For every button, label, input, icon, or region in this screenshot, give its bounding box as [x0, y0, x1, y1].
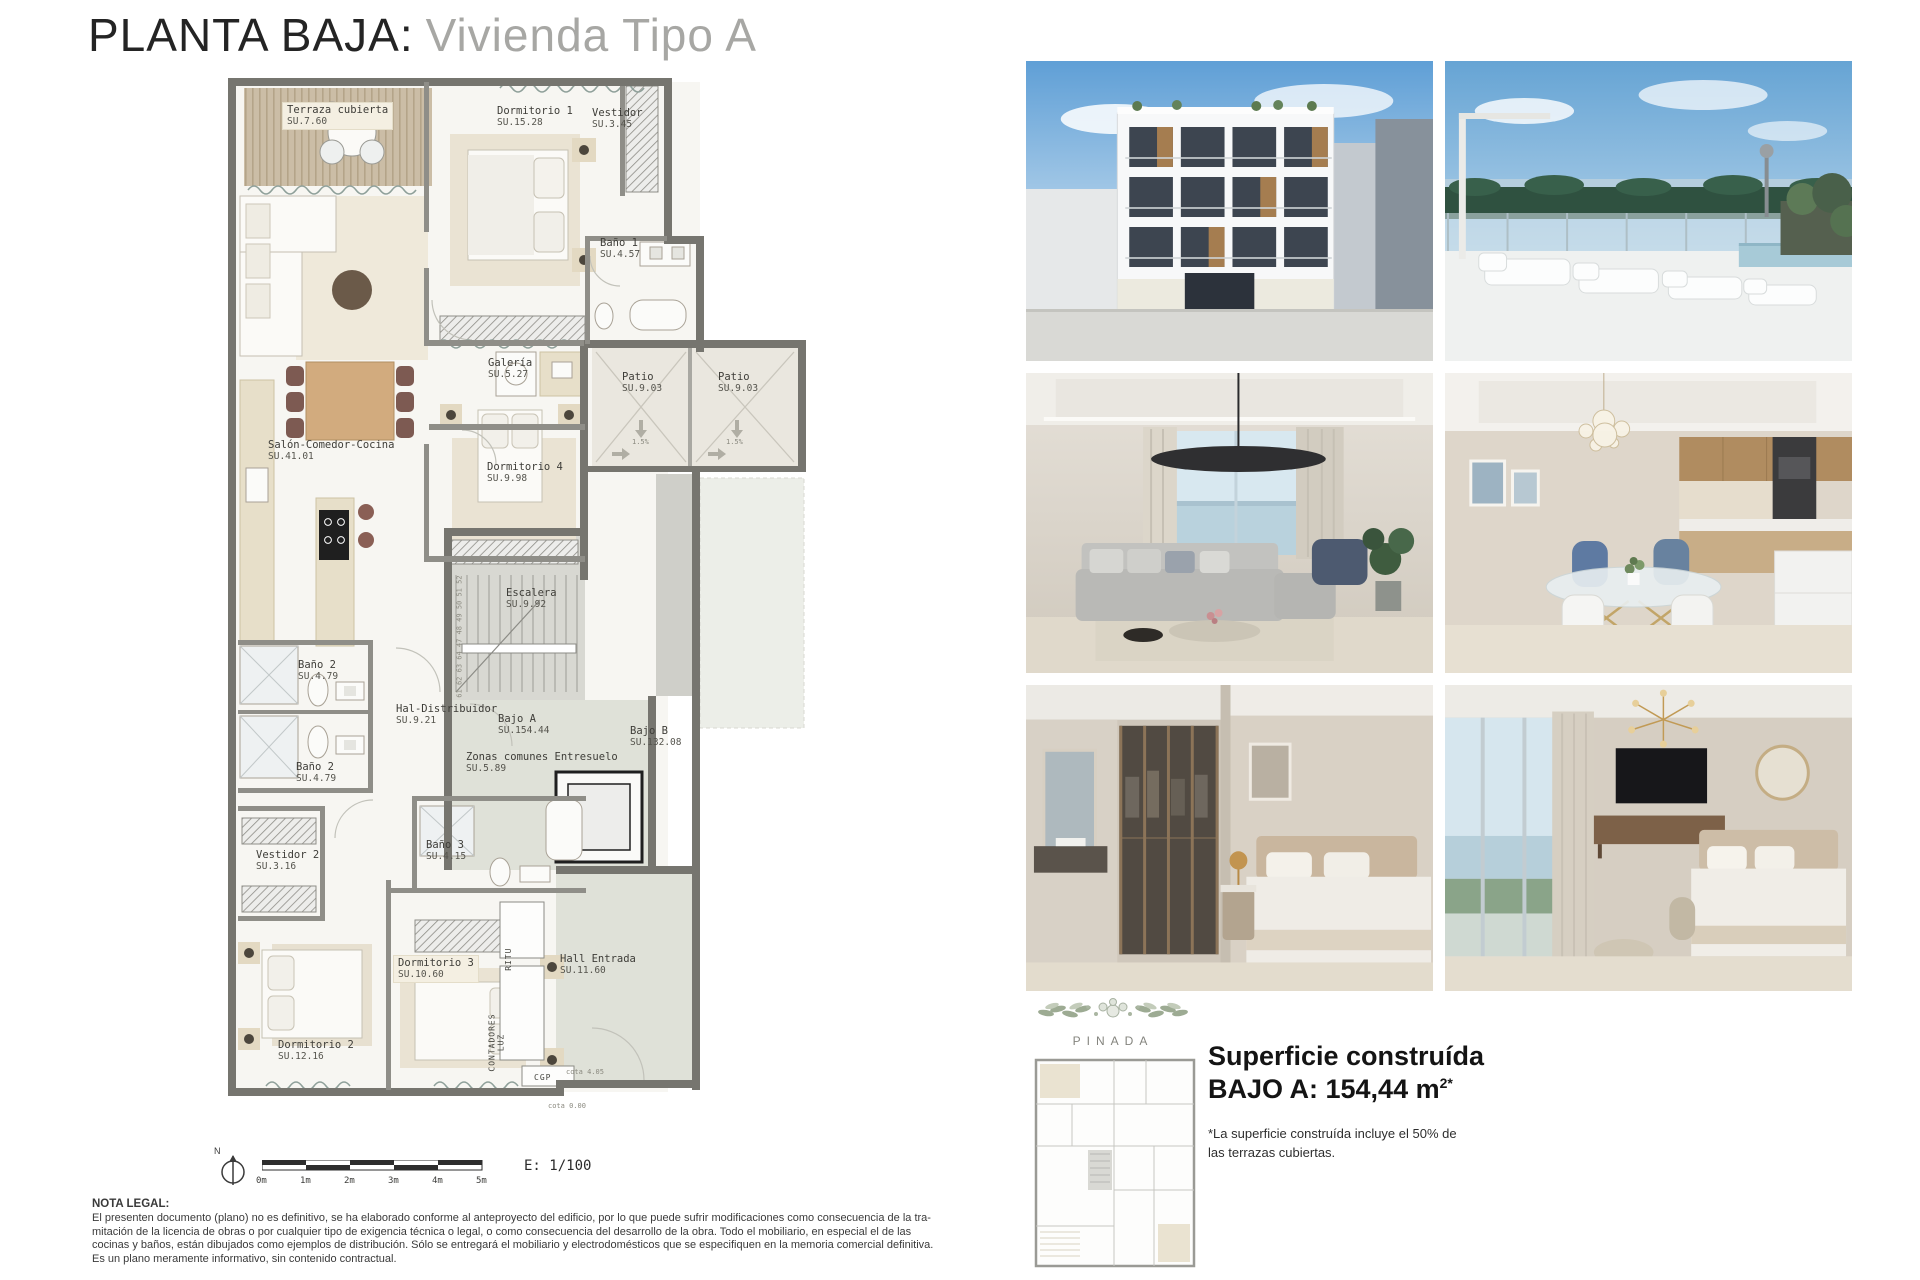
room-label: Hall EntradaSU.11.60	[560, 954, 636, 976]
room-label: Dormitorio 4SU.9.98	[487, 462, 563, 484]
scale-tick: 3m	[388, 1176, 399, 1186]
garland-logo-icon	[1028, 996, 1198, 1028]
photo-building-exterior	[1026, 61, 1433, 361]
room-label: GaleríaSU.5.27	[488, 358, 532, 380]
scale-ratio: E: 1/100	[524, 1158, 591, 1174]
plan-annotation: cota 0.00	[548, 1102, 586, 1110]
room-label: Terraza cubiertaSU.7.60	[283, 103, 392, 129]
plan-annotation: cota 4.05	[566, 1068, 604, 1076]
photo-rooftop-terrace	[1445, 61, 1852, 361]
floor-plan: Terraza cubiertaSU.7.60Dormitorio 1SU.15…	[210, 58, 1010, 1110]
page-title-main: PLANTA BAJA:	[88, 9, 414, 61]
legal-line: mitación de la licencia de obras o por c…	[92, 1226, 952, 1240]
legal-heading: NOTA LEGAL:	[92, 1198, 952, 1210]
plan-annotation: 1.5%	[726, 438, 743, 446]
north-arrow-icon	[216, 1152, 250, 1188]
room-label: Dormitorio 1SU.15.28	[497, 106, 573, 128]
surface-title: Superficie construída	[1208, 1040, 1648, 1073]
plan-labels: Terraza cubiertaSU.7.60Dormitorio 1SU.15…	[210, 58, 1010, 1110]
key-plan-thumbnail	[1026, 1054, 1204, 1274]
plan-annotation: 61 62 63 64 47 48 49 50 51 52	[456, 575, 464, 697]
room-label: Zonas comunes EntresueloSU.5.89	[466, 752, 618, 774]
legal-lines: El presenten documento (plano) no es def…	[92, 1212, 952, 1266]
surface-summary: Superficie construída BAJO A: 154,44 m2*…	[1208, 1040, 1648, 1163]
room-label: Hal-DistribuidorSU.9.21	[396, 704, 497, 726]
plan-annotation: RITU	[505, 948, 514, 971]
scale-tick: 1m	[300, 1176, 311, 1186]
plan-annotation: CGP	[534, 1073, 551, 1082]
room-label: Salón-Comedor-CocinaSU.41.01	[268, 440, 394, 462]
room-label: PatioSU.9.03	[718, 372, 758, 394]
legal-note: NOTA LEGAL: El presenten documento (plan…	[92, 1198, 952, 1266]
room-label: Bajo ASU.154.44	[498, 714, 549, 736]
room-label: Baño 2SU.4.79	[298, 660, 338, 682]
room-label: Dormitorio 3SU.10.60	[394, 956, 478, 982]
room-label: Baño 1SU.4.57	[600, 238, 640, 260]
surface-note: *La superficie construída incluye el 50%…	[1208, 1124, 1648, 1163]
surface-value: BAJO A: 154,44 m2*	[1208, 1073, 1648, 1106]
scale-tick: 5m	[476, 1176, 487, 1186]
scale-tick: 4m	[432, 1176, 443, 1186]
room-label: PatioSU.9.03	[622, 372, 662, 394]
room-label: Vestidor 2SU.3.16	[256, 850, 319, 872]
room-label: Bajo BSU.132.08	[630, 726, 681, 748]
photo-dining-kitchen	[1445, 373, 1852, 673]
legal-line: Es un plano meramente informativo, sin c…	[92, 1253, 952, 1267]
legal-line: cocinas y baños, están dibujados como ej…	[92, 1239, 952, 1253]
room-label: Baño 3SU.4.15	[426, 840, 466, 862]
room-label: Baño 2SU.4.79	[296, 762, 336, 784]
graphic-scale	[262, 1160, 484, 1172]
plan-annotation: CONTADORES LUZ	[488, 1013, 506, 1071]
legal-line: El presenten documento (plano) no es def…	[92, 1212, 952, 1226]
scale-tick: 0m	[256, 1176, 267, 1186]
page-title-sub: Vivienda Tipo A	[426, 9, 757, 61]
photo-grid	[1026, 61, 1852, 993]
brand-block: PINADA	[1028, 996, 1198, 1048]
brand-name: PINADA	[1028, 1034, 1198, 1048]
room-label: Dormitorio 2SU.12.16	[278, 1040, 354, 1062]
photo-bedroom-dressing	[1026, 685, 1433, 991]
scale-tick: 2m	[344, 1176, 355, 1186]
photo-living-room	[1026, 373, 1433, 673]
plan-annotation: 1.5%	[632, 438, 649, 446]
scale-bar: N 0m1m2m3m4m5m E: 1/100	[216, 1150, 636, 1198]
room-label: EscaleraSU.9.92	[506, 588, 557, 610]
room-label: VestidorSU.3.45	[592, 108, 643, 130]
page-title: PLANTA BAJA:Vivienda Tipo A	[88, 8, 757, 62]
photo-bedroom-tv	[1445, 685, 1852, 991]
